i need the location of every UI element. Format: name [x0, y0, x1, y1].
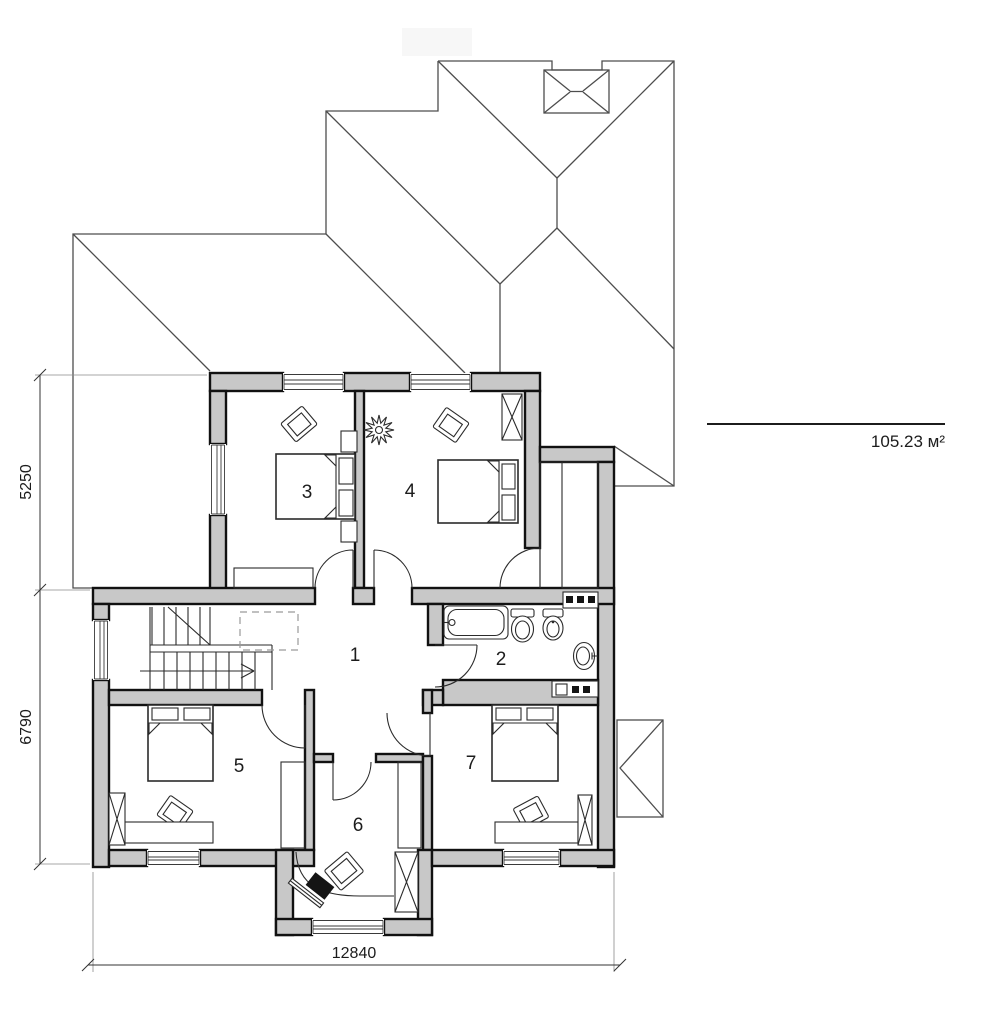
area-label: 105.23 м²	[871, 432, 945, 451]
desk-room7	[495, 822, 578, 843]
window	[210, 444, 226, 515]
area-annotation: 105.23 м²	[707, 424, 945, 451]
dormer-roof	[617, 720, 663, 817]
bidet-icon	[543, 609, 563, 640]
dim-label-6790: 6790	[18, 709, 35, 745]
stair-void-dashed	[240, 612, 298, 650]
desk-room5	[123, 822, 213, 843]
staircase	[140, 607, 298, 690]
nightstand	[341, 521, 357, 542]
room-label-1: 1	[350, 645, 361, 666]
dim-label-5250: 5250	[18, 464, 35, 500]
wardrobe-x-room6	[395, 852, 418, 912]
stairs-direction-arrow	[140, 664, 254, 678]
toilet-icon	[511, 609, 534, 642]
room-label-7: 7	[466, 753, 477, 774]
room-number-labels: 1 2 3 4 5 6 7	[234, 481, 507, 836]
room-label-4: 4	[405, 481, 416, 502]
nightstand	[341, 431, 357, 452]
dim-label-12840: 12840	[332, 945, 377, 962]
plant-icon	[364, 415, 394, 445]
room-label-6: 6	[353, 815, 364, 836]
room-label-3: 3	[302, 482, 313, 503]
armchair-room3	[281, 406, 318, 442]
room-label-2: 2	[496, 649, 507, 670]
sink-icon	[574, 643, 599, 670]
window	[312, 919, 384, 935]
window	[93, 620, 109, 680]
bed-room7	[492, 705, 558, 781]
roof-outline	[73, 61, 674, 588]
radiator	[234, 568, 313, 588]
laptop-room6	[288, 872, 334, 907]
window	[503, 850, 560, 866]
chimney-icon	[544, 70, 609, 113]
bed-room5	[148, 705, 213, 781]
armchair-room4	[433, 407, 470, 443]
window	[410, 373, 471, 391]
vent-blocks	[552, 592, 598, 697]
floor-plan-page: 1 2 3 4 5 6 7 5250 6790 12840 105.23 м²	[0, 0, 987, 1024]
room-label-5: 5	[234, 756, 245, 777]
bed-room4	[438, 460, 518, 523]
floor-plan-drawing: 1 2 3 4 5 6 7 5250 6790 12840 105.23 м²	[0, 0, 987, 1024]
wardrobe-x-room5	[109, 793, 125, 845]
window	[283, 373, 344, 391]
wardrobe-x-room7	[578, 795, 592, 845]
window	[147, 850, 200, 866]
bed-room3	[276, 431, 357, 542]
bathtub-icon	[444, 606, 508, 639]
scan-artifact	[402, 28, 472, 56]
wardrobe-x-room4	[502, 394, 522, 440]
